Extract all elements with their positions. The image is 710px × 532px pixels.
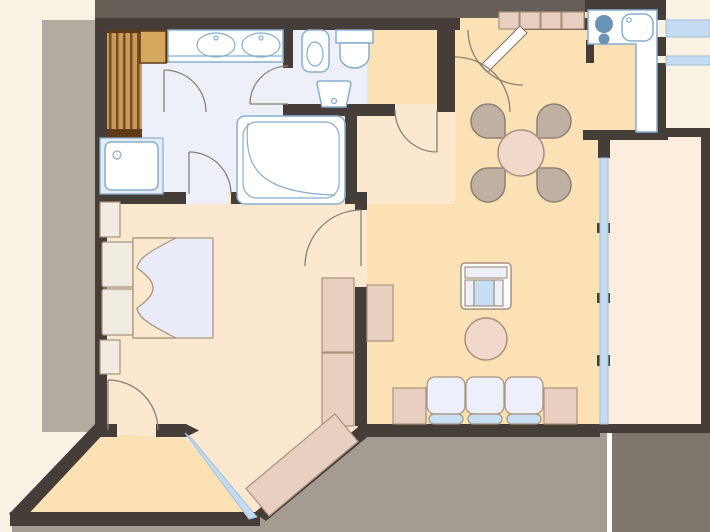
wardrobe-lower <box>322 353 354 426</box>
armchair-seat <box>474 280 494 306</box>
wc-right-wall <box>437 18 455 112</box>
kitchen-right-wall-c <box>657 63 666 137</box>
sauna-bench <box>140 31 166 63</box>
sofa-side-table-right <box>544 388 577 424</box>
tub-right-wall <box>345 104 357 204</box>
bathroom-wc-wall <box>283 24 293 68</box>
pillow-1 <box>102 242 133 287</box>
shower-base <box>105 142 158 190</box>
bathroom-wc-wall-stub <box>283 104 293 116</box>
cooktop-burner-large <box>595 15 613 33</box>
kitchen-window-lower <box>666 56 710 65</box>
dining-chair-se <box>537 168 571 202</box>
sofa-side-table-left <box>393 388 426 424</box>
dining-chair-nw <box>471 104 505 138</box>
balcony-bottom-wall <box>596 424 710 433</box>
sauna-slat-gap <box>109 33 112 129</box>
terrace-bottom-wall <box>10 512 260 526</box>
floor-plan-image <box>0 0 710 532</box>
armchair-back <box>465 267 507 278</box>
pillow-2 <box>102 289 133 335</box>
living-balcony-window <box>600 158 608 424</box>
bedroom-bottom-wall-b <box>156 424 186 437</box>
kitchen-sink <box>622 14 653 41</box>
upper-cabinet-1 <box>499 12 519 29</box>
nightstand-top <box>100 202 120 237</box>
balcony-top-wall <box>666 128 710 137</box>
adjacent-structure-bottom-right <box>612 433 710 532</box>
living-room-floor <box>367 18 600 425</box>
living-bottom-wall <box>358 424 600 437</box>
toilet-tank <box>336 30 373 43</box>
dining-chair-sw <box>471 168 505 202</box>
sauna-slat-gap <box>130 33 133 129</box>
sauna-slat-gap <box>116 33 119 129</box>
sofa-seat-edge-3 <box>507 414 541 424</box>
sauna-slat-gap <box>123 33 126 129</box>
window-wall-post <box>598 140 610 158</box>
top-wall-left <box>95 18 460 30</box>
coffee-table <box>465 318 507 360</box>
structure-seam <box>607 433 612 532</box>
sofa-cushion-3 <box>505 377 543 414</box>
sofa-cushion-2 <box>466 377 504 414</box>
kitchen-right-wall-a <box>657 12 666 20</box>
floor-plan-svg <box>0 0 710 532</box>
armchair-arm-left <box>465 280 474 306</box>
balcony-floor <box>608 137 701 424</box>
upper-cabinet-4 <box>562 12 584 29</box>
upper-cabinet-3 <box>541 12 561 29</box>
toilet-bowl <box>340 43 369 68</box>
bedroom-right-wall <box>355 287 367 426</box>
kitchen-right-wall-b <box>657 37 666 56</box>
armchair-arm-right <box>494 280 503 306</box>
nightstand-bottom <box>100 340 120 374</box>
dining-table <box>498 130 544 176</box>
upper-cabinet-2 <box>520 12 540 29</box>
kitchen-window-upper <box>666 20 710 37</box>
cooktop-burner-small <box>599 34 610 45</box>
wardrobe-upper <box>322 278 354 352</box>
bedroom-bottom-wall-a <box>95 424 117 437</box>
vestibule-floor <box>352 104 455 204</box>
bedroom-right-wall-stub <box>355 192 367 210</box>
sofa-cushion-1 <box>427 377 465 414</box>
adjacent-structure-left <box>42 20 95 432</box>
sauna-slat-gap <box>137 33 140 129</box>
sofa-seat-edge-2 <box>468 414 502 424</box>
corner-bathtub <box>237 116 345 204</box>
side-shelf <box>367 285 393 341</box>
dining-chair-ne <box>537 104 571 138</box>
right-wall <box>701 137 710 424</box>
sofa-seat-edge-1 <box>429 414 463 424</box>
